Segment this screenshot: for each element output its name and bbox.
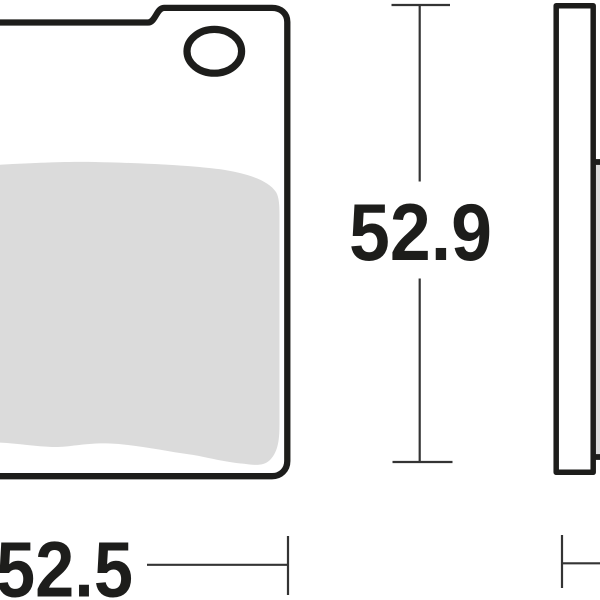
svg-text:52.5: 52.5 [0,525,133,600]
svg-text:52.9: 52.9 [349,188,492,278]
